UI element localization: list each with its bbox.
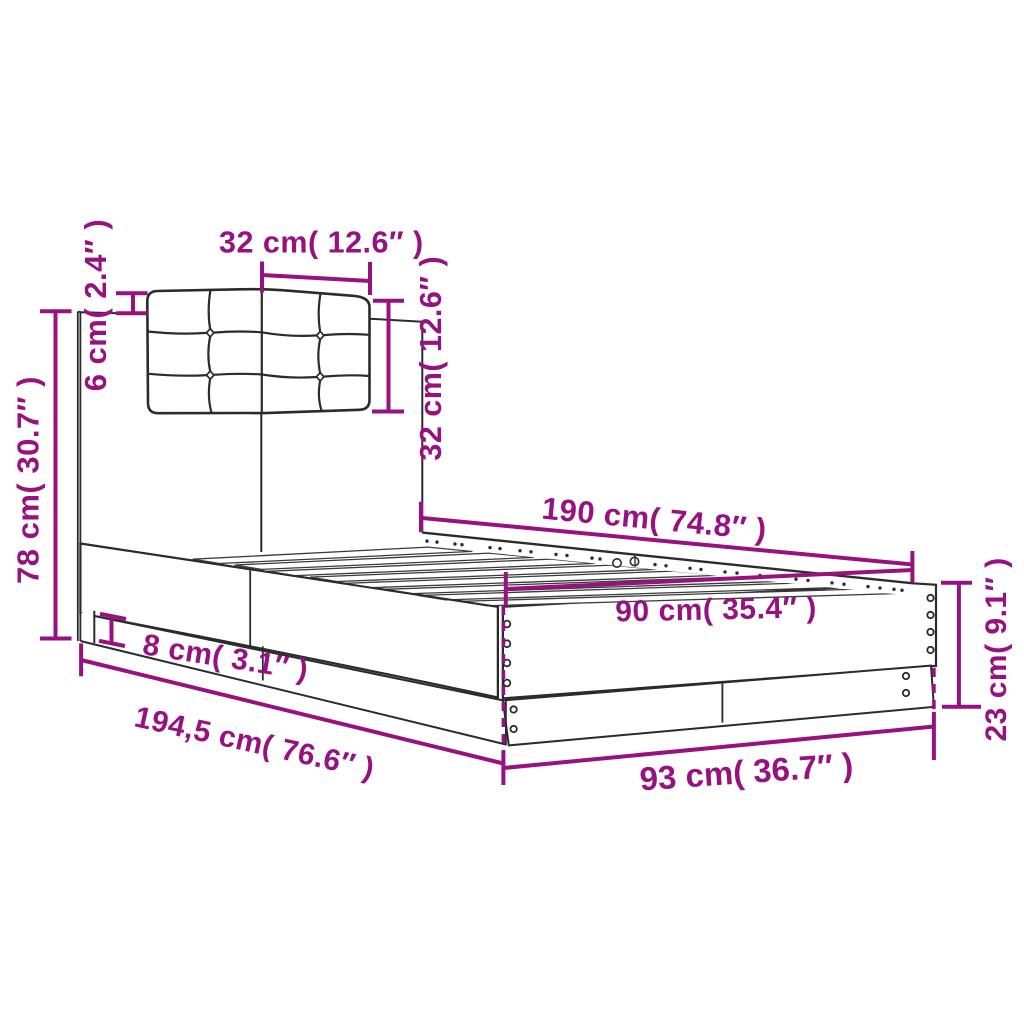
- svg-text:32 cm( 12.6″ ): 32 cm( 12.6″ ): [414, 256, 448, 461]
- svg-text:23 cm( 9.1″ ): 23 cm( 9.1″ ): [980, 557, 1013, 741]
- svg-text:6 cm( 2.4″ ): 6 cm( 2.4″ ): [78, 219, 113, 391]
- svg-text:78 cm( 30.7″ ): 78 cm( 30.7″ ): [11, 376, 46, 584]
- svg-text:90 cm( 35.4″ ): 90 cm( 35.4″ ): [615, 591, 817, 628]
- svg-text:32 cm( 12.6″ ): 32 cm( 12.6″ ): [219, 226, 424, 260]
